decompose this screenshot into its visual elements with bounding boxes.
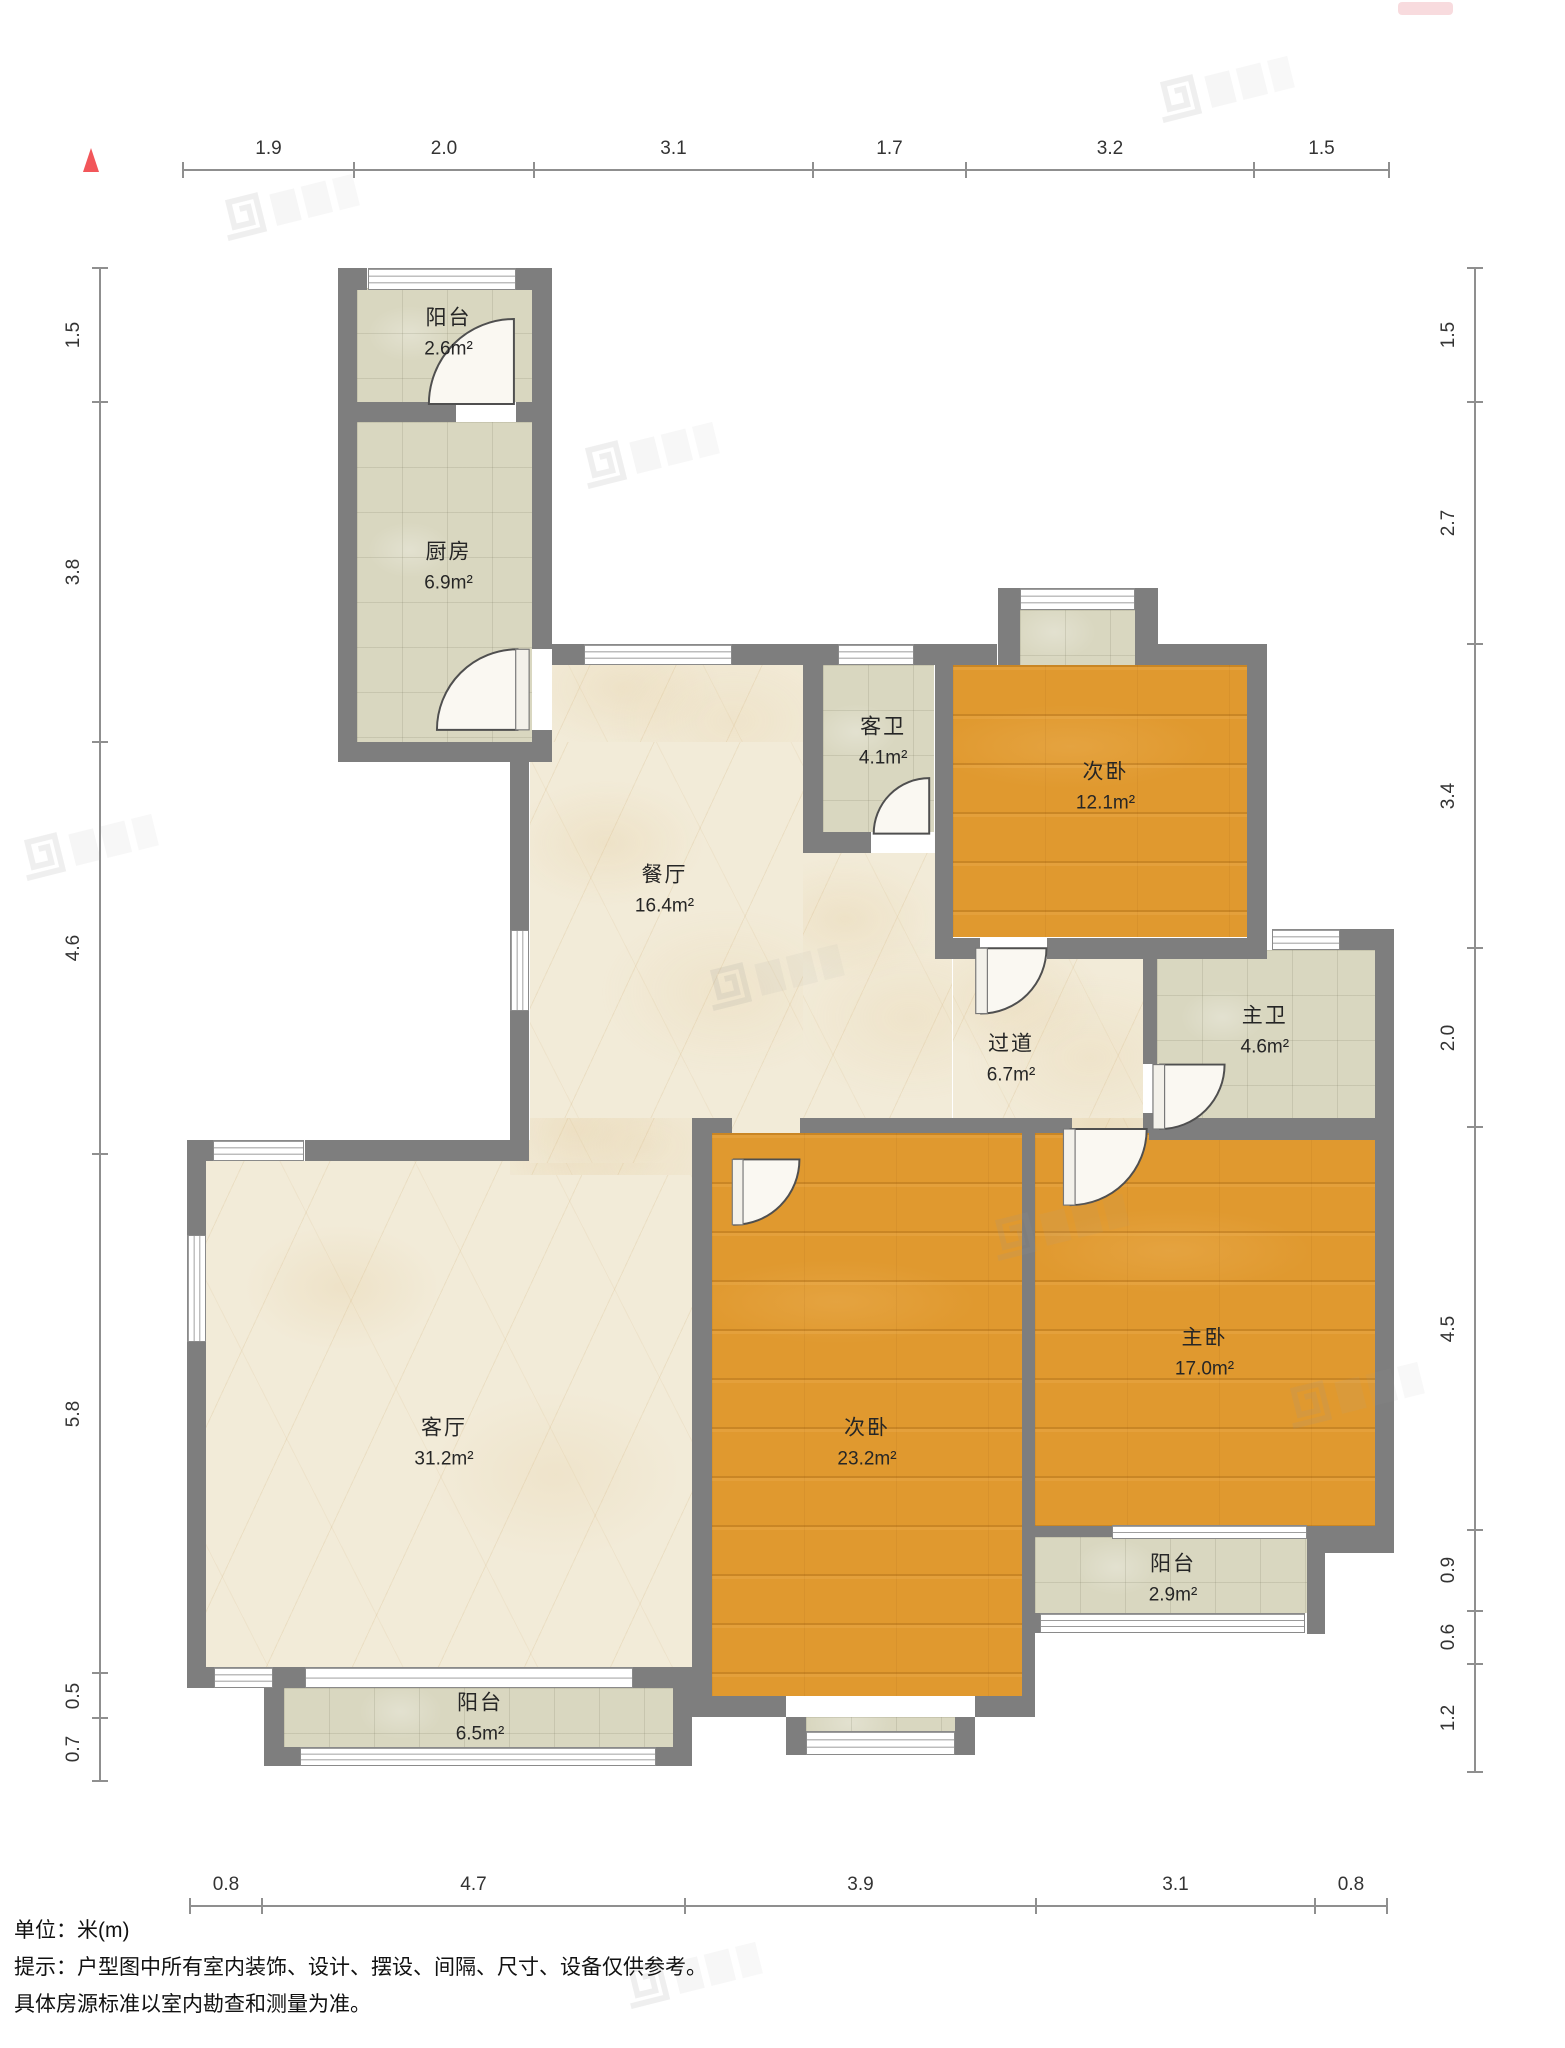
room-area: 4.1m² [859,747,908,769]
dimension-label: 4.7 [460,1874,486,1896]
dimension-tick [92,267,108,269]
room-name: 阳台 [1149,1547,1198,1577]
dimension-tick [1253,162,1255,178]
dimension-label: 0.7 [63,1736,85,1762]
room-area: 17.0m² [1175,1359,1234,1381]
room-area: 6.9m² [424,573,473,595]
door-arc-icon [1071,1129,1147,1205]
footer-tip-1: 提示：户型图中所有室内装饰、设计、摆设、间隔、尺寸、设备仅供参考。 [14,1949,707,1986]
dimension-tick [92,1780,108,1782]
room-name: 主卫 [1241,999,1290,1029]
dimension-tick [1467,401,1483,403]
dimension-label: 4.6 [63,935,85,961]
dimension-tick [1467,1771,1483,1773]
dimension-label: 0.8 [213,1874,239,1896]
dimension-label: 1.7 [876,138,902,160]
floorplan-canvas: 阳台2.6m²厨房6.9m²餐厅16.4m²客卫4.1m²次卧12.1m²主卫4… [0,0,1565,2048]
room-name: 客卫 [859,710,908,740]
logo-watermark-icon [1146,45,1304,132]
room-area: 31.2m² [414,1448,473,1470]
dimension-tick [92,401,108,403]
dimension-tick [182,162,184,178]
room-label: 主卧17.0m² [1175,1322,1234,1381]
room-label: 主卫4.6m² [1241,999,1290,1058]
dimension-label: 0.6 [1438,1624,1460,1650]
logo-watermark-icon [211,163,369,250]
room-label: 阳台6.5m² [456,1687,505,1746]
room-label: 次卧23.2m² [837,1411,896,1470]
dimension-tick [1386,1898,1388,1914]
room-label: 阳台2.6m² [424,301,473,360]
room-area: 2.9m² [1149,1584,1198,1606]
dimension-label: 2.7 [1438,510,1460,536]
dimension-label: 0.8 [1338,1874,1364,1896]
room-name: 次卧 [1076,756,1135,786]
room-name: 厨房 [424,536,473,566]
room-area: 16.4m² [635,896,694,918]
dimension-tick [92,1672,108,1674]
dimension-tick [1467,947,1483,949]
door-arc-icon [981,948,1046,1013]
dimension-label: 3.1 [1162,1874,1188,1896]
dimension-label: 3.2 [1097,138,1123,160]
dimension-tick [1467,1663,1483,1665]
door-leaf-icon [1063,1129,1075,1205]
room-label: 厨房6.9m² [424,536,473,595]
dimension-label: 4.5 [1438,1315,1460,1341]
dimension-line [99,268,101,1781]
door-arc-icon [734,1159,799,1224]
dimension-label: 3.4 [1438,783,1460,809]
dimension-label: 1.5 [63,322,85,348]
dimension-label: 0.9 [1438,1557,1460,1583]
room-label: 次卧12.1m² [1076,756,1135,815]
room-name: 阳台 [456,1687,505,1717]
dimension-tick [1388,162,1390,178]
room-area: 4.6m² [1241,1036,1290,1058]
door-arc-icon [874,778,929,833]
dimension-line [1474,268,1476,1772]
dimension-tick [812,162,814,178]
dimension-tick [1467,1529,1483,1531]
dimension-line [183,169,1389,171]
north-arrow-icon [83,148,99,172]
dimension-label: 3.1 [660,138,686,160]
dimension-tick [1467,643,1483,645]
room-area: 6.5m² [456,1724,505,1746]
dimension-label: 3.8 [63,559,85,585]
door-leaf-icon [1153,1065,1165,1129]
room-label: 客卫4.1m² [859,710,908,769]
dimension-label: 1.5 [1438,322,1460,348]
room-name: 餐厅 [635,859,694,889]
dimension-tick [353,162,355,178]
door-leaf-icon [976,948,988,1013]
dimension-tick [965,162,967,178]
room-label: 客厅31.2m² [414,1411,473,1470]
room-area: 23.2m² [837,1448,896,1470]
dimension-tick [1314,1898,1316,1914]
dimension-label: 2.0 [431,138,457,160]
door-leaf-icon [516,649,529,730]
dimension-tick [1467,1610,1483,1612]
footer-tip-2: 具体房源标准以室内勘查和测量为准。 [14,1986,707,2023]
room-label: 过道6.7m² [987,1028,1036,1087]
door-leaf-icon [732,1159,743,1224]
dimension-label: 5.8 [63,1400,85,1426]
dimension-label: 1.5 [1308,138,1334,160]
room-label: 餐厅16.4m² [635,859,694,918]
room-name: 主卧 [1175,1322,1234,1352]
room-label: 阳台2.9m² [1149,1547,1198,1606]
door-arcs-layer [183,268,1389,1781]
dimension-tick [533,162,535,178]
room-name: 次卧 [837,1411,896,1441]
dimension-label: 3.9 [847,1874,873,1896]
door-arc-icon [1160,1065,1224,1129]
dimension-label: 1.9 [255,138,281,160]
dimension-tick [1467,267,1483,269]
room-name: 过道 [987,1028,1036,1058]
dimension-tick [1467,1126,1483,1128]
room-area: 12.1m² [1076,793,1135,815]
dimension-label: 1.2 [1438,1705,1460,1731]
dimension-tick [92,1153,108,1155]
footer-notes: 单位：米(m) 提示：户型图中所有室内装饰、设计、摆设、间隔、尺寸、设备仅供参考… [14,1912,707,2023]
door-arc-icon [437,649,518,730]
room-name: 客厅 [414,1411,473,1441]
dimension-tick [92,1717,108,1719]
footer-unit: 单位：米(m) [14,1912,707,1949]
dimension-label: 0.5 [63,1682,85,1708]
room-name: 阳台 [424,301,473,331]
dimension-tick [92,741,108,743]
corner-watermark-icon [1398,2,1453,15]
dimension-tick [1035,1898,1037,1914]
room-area: 2.6m² [424,338,473,360]
dimension-line [190,1905,1387,1907]
logo-watermark-icon [10,803,168,890]
dimension-label: 2.0 [1438,1024,1460,1050]
room-area: 6.7m² [987,1065,1036,1087]
